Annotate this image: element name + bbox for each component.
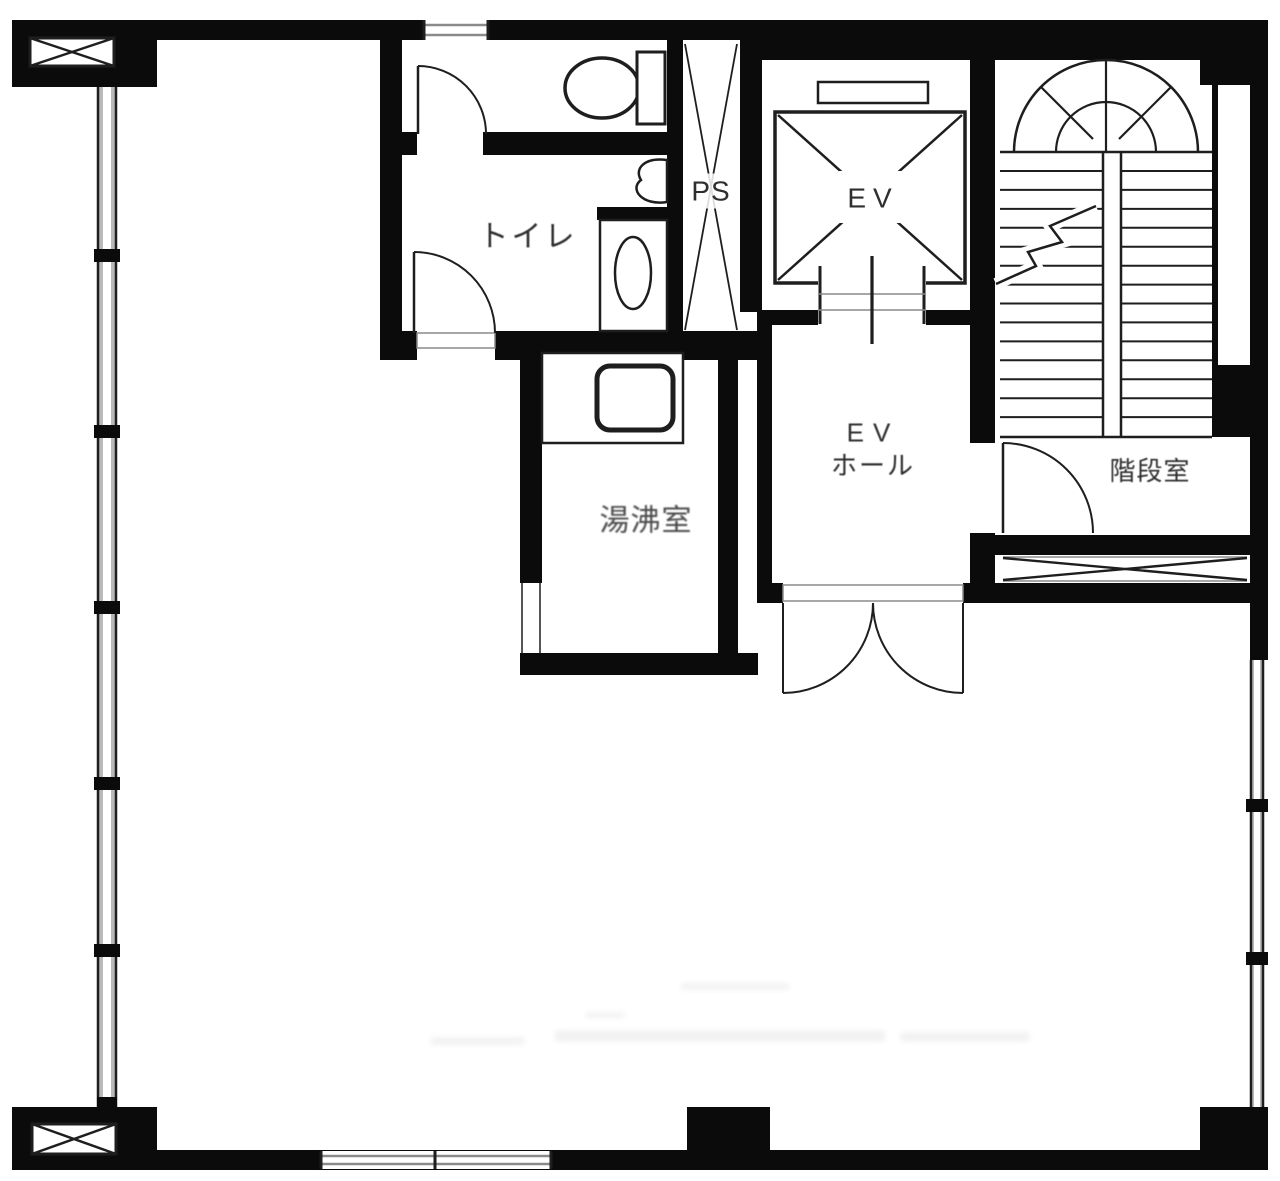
toilet-entry-door-arc <box>414 252 495 348</box>
print-smudge <box>680 983 790 990</box>
hand-basin-icon <box>636 160 667 203</box>
staircase-icon <box>996 60 1212 437</box>
structural-column <box>687 1107 770 1150</box>
kitchenette-opening <box>522 583 540 653</box>
print-smudge <box>585 1012 625 1018</box>
crossed-louver-window-stairwell-icon <box>1003 556 1247 582</box>
elevator-door-sill <box>818 256 926 344</box>
room-label-pipe-space: PS <box>690 174 731 209</box>
room-label-elevator-hall: EV ホール <box>831 417 915 482</box>
stair-break-line-icon <box>996 206 1096 284</box>
mullion <box>94 249 120 262</box>
room-label-elevator-hall-line1: EV <box>831 417 915 450</box>
room-label-kitchenette: 湯沸室 <box>600 502 693 540</box>
right-window-wall <box>1246 660 1268 1107</box>
elevator-counterweight-icon <box>818 82 928 103</box>
room-label-toilet: トイレ <box>479 218 578 256</box>
toilet-bowl-icon <box>565 52 665 124</box>
vanity-sink-icon <box>600 220 667 331</box>
print-smudge <box>900 1032 1030 1042</box>
crossed-window-bottom-left-icon <box>32 1124 116 1154</box>
bottom-window <box>320 1151 552 1169</box>
left-window-wall <box>94 87 120 1109</box>
mullion <box>1246 799 1268 812</box>
mullion <box>94 601 120 614</box>
print-smudge <box>555 1030 885 1042</box>
elevator-hall-double-door-arc <box>783 585 963 693</box>
toilet-inner-door-arc <box>418 66 486 134</box>
mullion <box>94 777 120 790</box>
mullion <box>1246 952 1268 965</box>
top-window <box>423 20 489 40</box>
print-smudge <box>430 1037 525 1045</box>
room-label-stairwell: 階段室 <box>1109 455 1190 488</box>
mullion <box>94 944 120 957</box>
mullion <box>94 425 120 438</box>
room-label-elevator-hall-line2: ホール <box>831 449 915 482</box>
stairwell-door-arc <box>1003 443 1093 533</box>
kitchen-sink-icon <box>542 353 683 443</box>
crossed-window-top-left-icon <box>30 38 114 66</box>
plan-drawing <box>0 0 1280 1181</box>
floor-plan-canvas: トイレ PS EV EV ホール 湯沸室 階段室 <box>0 0 1280 1181</box>
room-label-elevator: EV <box>845 181 900 216</box>
